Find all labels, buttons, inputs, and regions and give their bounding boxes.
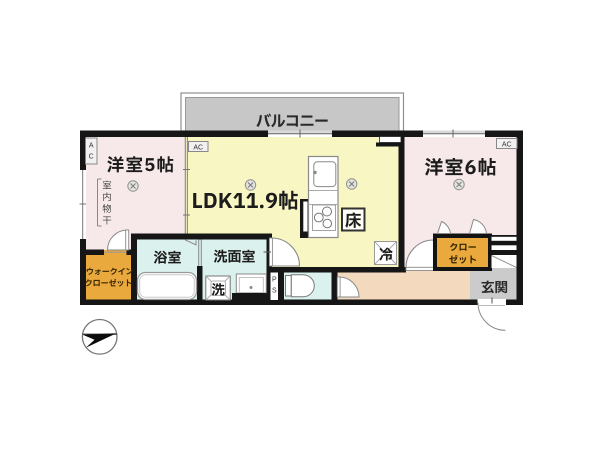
svg-text:AC: AC	[193, 145, 203, 152]
svg-text:C: C	[89, 154, 94, 161]
svg-text:A: A	[89, 143, 94, 150]
svg-text:AC: AC	[502, 142, 512, 149]
svg-text:P: P	[272, 277, 277, 284]
svg-text:S: S	[272, 288, 277, 295]
